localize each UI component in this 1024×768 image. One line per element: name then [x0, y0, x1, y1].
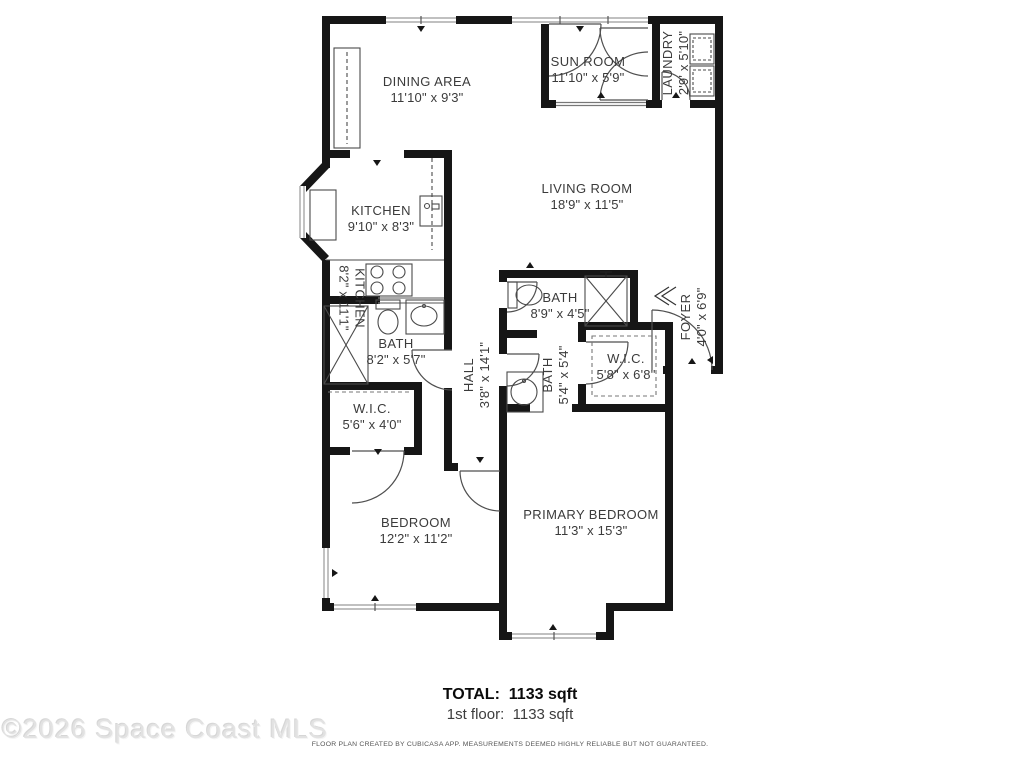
sink-icon — [406, 300, 444, 334]
floor-plan-page: DINING AREA 11'10" x 9'3" SUN ROOM 11'10… — [0, 0, 1024, 768]
wic2-door-arc — [352, 451, 404, 503]
dryer-icon — [690, 66, 714, 96]
washer-icon — [690, 34, 714, 64]
shower2-icon — [585, 272, 627, 326]
room-label-primary-bedroom: PRIMARY BEDROOM 11'3" x 15'3" — [523, 507, 659, 540]
foyer-entry-chevrons — [655, 287, 676, 305]
toilet-icon — [376, 300, 400, 334]
stove-icon — [366, 264, 412, 296]
dining-cabinet — [334, 48, 360, 148]
room-label-kitchen-galley: KITCHEN 8'2" x 11'1" — [335, 265, 368, 331]
floor-plan-drawing — [0, 0, 1024, 768]
mls-watermark: ©2026 Space Coast MLS — [2, 714, 328, 745]
room-label-wic-primary: W.I.C. 5'8" x 6'8" — [596, 351, 655, 384]
room-label-bath-1: BATH 8'9" x 4'5" — [530, 290, 589, 323]
room-label-kitchen: KITCHEN 9'10" x 8'3" — [348, 203, 414, 236]
bedroom-door-arc — [460, 471, 500, 511]
total-area: TOTAL: 1133 sqft — [443, 686, 578, 704]
room-label-sun-room: SUN ROOM 11'10" x 5'9" — [551, 54, 626, 87]
room-label-bedroom: BEDROOM 12'2" x 11'2" — [380, 515, 453, 548]
room-label-dining-area: DINING AREA 11'10" x 9'3" — [383, 74, 471, 107]
room-label-bath-2: BATH 8'2" x 5'7" — [366, 336, 425, 369]
disclaimer-text: FLOOR PLAN CREATED BY CUBICASA APP. MEAS… — [312, 741, 709, 748]
room-label-living-room: LIVING ROOM 18'9" x 11'5" — [541, 181, 632, 214]
room-label-foyer: FOYER 4'0" x 6'9" — [678, 287, 711, 346]
room-label-hall: HALL 3'8" x 14'1" — [461, 342, 494, 408]
room-label-bath-3: BATH 5'4" x 5'4" — [540, 345, 573, 404]
bay-counter — [310, 190, 336, 240]
oven-icon — [420, 196, 442, 226]
first-floor-area: 1st floor: 1133 sqft — [443, 706, 578, 723]
room-label-laundry: LAUNDRY 2'9' x 5'10" — [660, 31, 693, 96]
room-label-wic-bedroom: W.I.C. 5'6" x 4'0" — [342, 401, 401, 434]
area-summary: TOTAL: 1133 sqft 1st floor: 1133 sqft — [443, 686, 578, 723]
